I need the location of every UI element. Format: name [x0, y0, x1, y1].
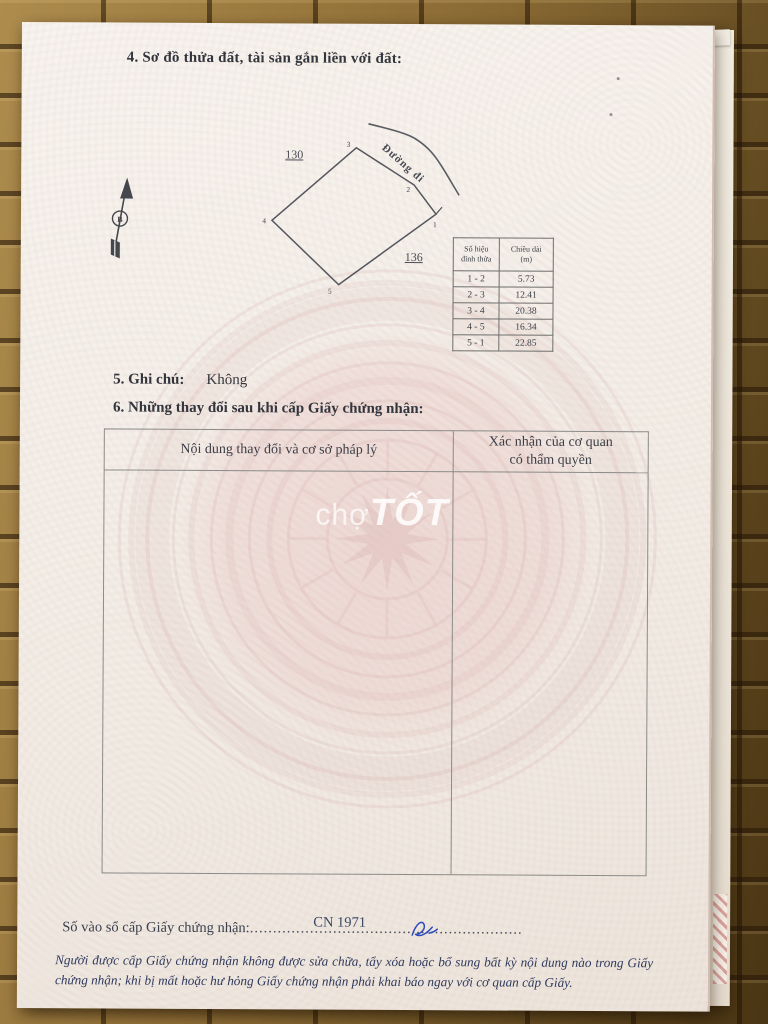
vertex-label-1: 1	[433, 220, 437, 229]
edge-segment: 2 - 3	[453, 287, 499, 303]
edge-segment: 5 - 1	[453, 335, 499, 351]
watermark-part1: chợ	[315, 499, 370, 533]
vertex-label-2: 2	[406, 185, 410, 194]
vertex-label-3: 3	[347, 140, 351, 149]
edge-segment: 1 - 2	[453, 271, 499, 287]
changes-table-column-divider	[451, 431, 454, 874]
north-label: B	[117, 215, 123, 224]
notice-line1: Người được cấp Giấy chứng nhận không đượ…	[55, 952, 624, 970]
serial-label: Số vào sổ cấp Giấy chứng nhận:	[62, 919, 250, 936]
section5-value: Không	[206, 372, 247, 388]
certificate-page: 4. Sơ đồ thửa đất, tài sản gắn liền với …	[17, 22, 715, 1012]
adjacent-parcel-136: 136	[405, 250, 423, 265]
table-row: 1 - 2 5.73	[453, 271, 553, 288]
section6-title: 6. Những thay đổi sau khi cấp Giấy chứng…	[113, 399, 424, 418]
section5-line: 5. Ghi chú:Không	[113, 371, 247, 389]
pen-mark	[409, 917, 439, 943]
col1-header-line1: Số hiệu	[464, 244, 488, 253]
plot-diagram: B 1 2 3 4 5	[20, 22, 713, 426]
table-row: 4 - 5 16.34	[453, 319, 553, 336]
footer-notice: Người được cấp Giấy chứng nhận không đượ…	[55, 950, 653, 994]
edge-length: 20.38	[499, 303, 553, 319]
col2-header-line2: (m)	[520, 255, 532, 264]
changes-table-col1-header: Nội dung thay đổi và cơ sở pháp lý	[105, 429, 453, 471]
watermark-part2: TỐT	[370, 492, 449, 535]
vertex-label-5: 5	[328, 287, 332, 296]
section5-label: 5. Ghi chú:	[113, 371, 184, 387]
edge-length-table: Số hiệu đỉnh thửa Chiều dài (m) 1 - 2 5.…	[452, 237, 554, 352]
edge-length: 22.85	[499, 335, 553, 351]
table-row: 2 - 3 12.41	[453, 287, 553, 304]
edge-segment: 4 - 5	[453, 319, 499, 335]
col2-header-line1: Xác nhận của cơ quan	[489, 433, 613, 452]
col2-header-line2: có thẩm quyền	[509, 452, 592, 471]
serial-value: CN 1971	[313, 915, 366, 932]
edge-table-col1-header: Số hiệu đỉnh thửa	[453, 238, 499, 271]
changes-table-col2-header: Xác nhận của cơ quan có thẩm quyền	[454, 431, 648, 472]
edge-segment: 3 - 4	[453, 303, 499, 319]
vertex1-tick	[436, 207, 442, 214]
adjacent-parcel-130: 130	[285, 147, 303, 162]
photo-background: { "page": { "section4_title": "4. Sơ đồ …	[0, 0, 768, 1024]
serial-number-line: Số vào sổ cấp Giấy chứng nhận:..........…	[62, 919, 522, 938]
chotot-watermark: chợTỐT	[315, 492, 449, 536]
edge-length: 16.34	[499, 319, 553, 335]
vertex-label-4: 4	[262, 216, 266, 225]
edge-length: 12.41	[499, 287, 553, 303]
edge-length: 5.73	[499, 271, 553, 287]
table-row: 3 - 4 20.38	[453, 303, 553, 320]
col1-header-line2: đỉnh thửa	[461, 254, 491, 263]
table-row: 5 - 1 22.85	[453, 335, 553, 352]
edge-table-col2-header: Chiều dài (m)	[499, 238, 553, 271]
serial-dotted-line: ........................................…	[250, 920, 523, 937]
edge-table-header-row: Số hiệu đỉnh thửa Chiều dài (m)	[453, 238, 553, 272]
col2-header-line1: Chiều dài	[511, 245, 542, 254]
underpage-guilloche-border	[713, 894, 727, 984]
